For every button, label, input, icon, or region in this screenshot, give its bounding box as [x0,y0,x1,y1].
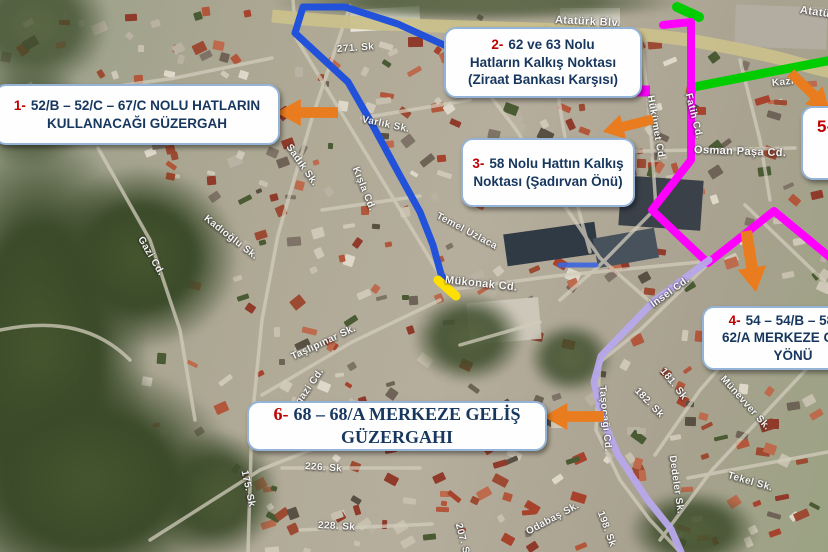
street-label: 228. Sk [318,520,356,533]
street-label: Sadık Sk. [283,142,320,188]
street-label: 175. Sk [239,469,258,508]
callout-4-line2: 62/A MERKEZE GELİŞ [722,329,828,347]
street-label: İnsel Cd. [649,274,692,310]
callout-4: 4-54 – 54/B – 58- 58 62/A MERKEZE GELİŞ … [702,306,828,370]
street-label: Tekel Sk. [726,470,773,493]
street-label: Varlık Sk. [361,114,411,135]
callout-3-number: 3- [472,156,484,171]
street-label: Odabaş Sk. [524,500,581,537]
street-label: Temel Uzlaca [434,211,499,252]
callout-6: 6-68 – 68/A MERKEZE GELİŞ GÜZERGAHI [247,401,547,451]
callout-1-line2: KULLANACAĞI GÜZERGAH [47,115,227,133]
callout-4-line3: YÖNÜ [773,347,812,365]
callout-4-number: 4- [729,313,741,328]
callout-6-number: 6- [273,404,288,424]
callout-3-line2: Noktası (Şadırvan Önü) [473,173,622,191]
street-label: 181. Sk [658,366,690,402]
callout-2: 2-62 ve 63 Nolu Hatların Kalkış Noktası … [444,27,642,98]
callout-2-number: 2- [491,37,503,52]
street-label: 271. Sk [337,41,375,55]
street-label: Münevver Sk. [718,374,773,433]
callout-2-line1: 62 ve 63 Nolu [508,37,594,52]
callout-3-line1: 58 Nolu Hattın Kalkış [489,156,623,171]
street-label: 226. Sk [305,461,343,475]
street-label: Kışla Cd. [350,165,378,212]
callout-4-line1: 54 – 54/B – 58- 58 [746,313,828,328]
street-label: 182. Sk [632,386,666,420]
street-label: Fatih Cd. [683,92,705,140]
street-label: Mükonak Cd. [444,274,518,294]
callout-1: 1-52/B – 52/C – 67/C NOLU HATLARIN KULLA… [0,84,280,145]
callout-6-line1: 68 – 68/A MERKEZE GELİŞ [293,404,520,424]
street-label: Gazi Cd. [135,235,166,278]
street-label: Osman Paşa Cd. [694,144,787,159]
street-labels: Atatürk Blv. Atatürk Blv. 271. Sk Varlık… [0,0,828,552]
street-label: 207. Sk [453,522,473,552]
callout-2-line2: Hatların Kalkış Noktası [470,54,616,72]
callout-3: 3-58 Nolu Hattın Kalkış Noktası (Şadırva… [461,138,635,207]
street-label: Atatürk Blv. [799,4,828,25]
callout-5: 5- [801,106,828,180]
street-label: Hükümet Cd. [645,95,667,162]
callout-5-number: 5- [817,117,828,136]
map-figure: Atatürk Blv. Atatürk Blv. 271. Sk Varlık… [0,0,828,552]
callout-6-line2: GÜZERGAHI [341,426,453,449]
street-label: Kadıoğlu Sk. [202,213,260,262]
street-label: 198. Sk [595,510,618,549]
street-label: Dedeler Sk. [667,455,686,515]
callout-1-line1: 52/B – 52/C – 67/C NOLU HATLARIN [31,98,260,113]
street-label: Taşlıpınar Sk. [290,323,358,363]
callout-1-number: 1- [14,98,26,113]
callout-2-line3: (Ziraat Bankası Karşısı) [468,71,618,89]
